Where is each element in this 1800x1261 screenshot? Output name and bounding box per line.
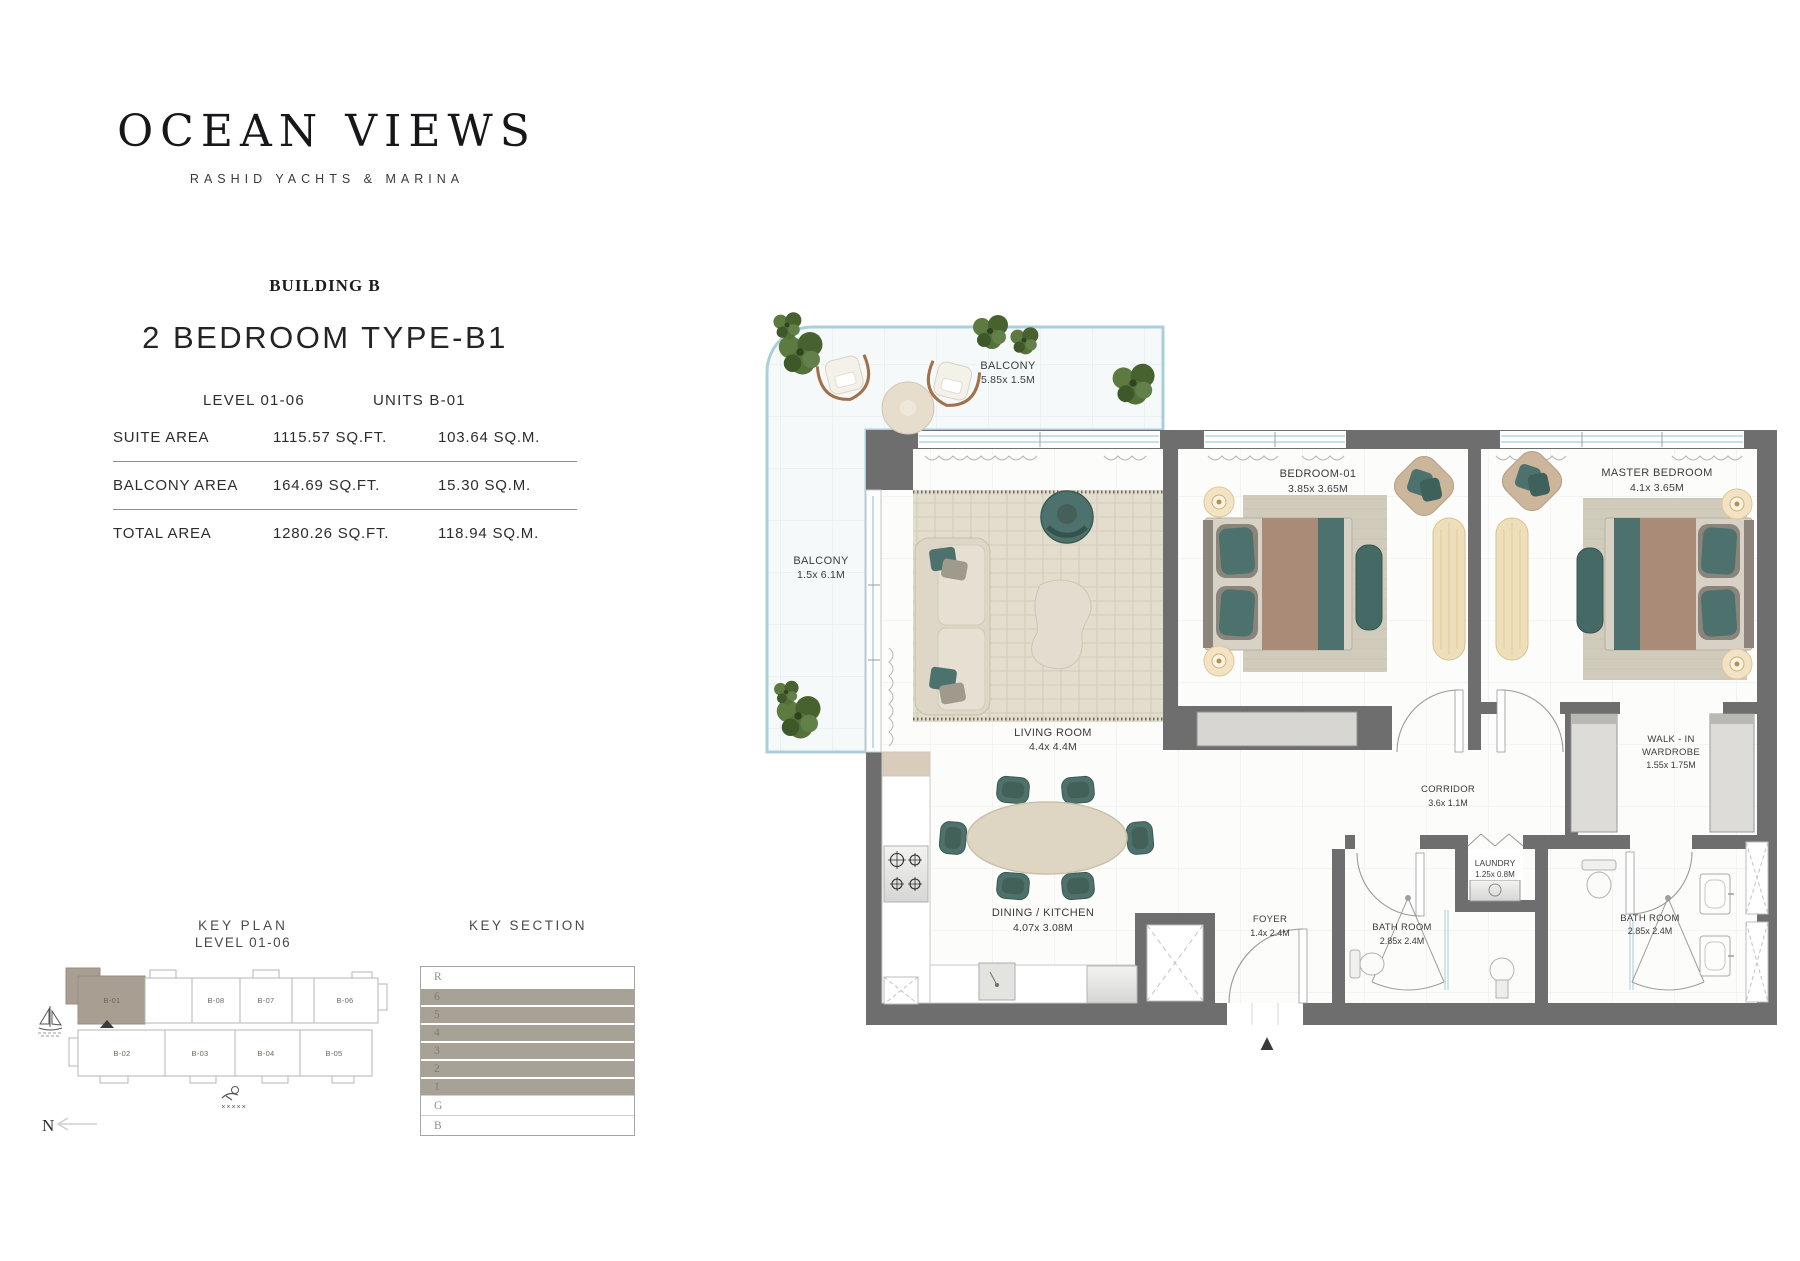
key-plan-unit-label: B-08 <box>207 996 224 1005</box>
key-section-row: 1 <box>421 1077 634 1095</box>
area-sqft: 164.69 SQ.FT. <box>273 477 438 494</box>
room-dims: 3.85x 3.65M <box>1288 483 1348 495</box>
key-section-row: R <box>421 967 634 987</box>
key-plan-unit-label: B-04 <box>257 1049 274 1058</box>
page-title: 2 BEDROOM TYPE-B1 <box>85 320 565 356</box>
room-dims: 4.4x 4.4M <box>1029 741 1077 753</box>
area-label: SUITE AREA <box>113 429 273 446</box>
kitchen-sink <box>979 963 1015 1000</box>
key-plan-diagram: B-01 B-08 B-07 B-06 B-02 B-03 B-04 B-05 … <box>30 958 410 1143</box>
brochure-page: OCEAN VIEWS RASHID YACHTS & MARINA BUILD… <box>0 0 1800 1261</box>
area-label: TOTAL AREA <box>113 525 273 542</box>
brand-tagline: RASHID YACHTS & MARINA <box>117 172 537 186</box>
bed-bench <box>1577 548 1603 633</box>
room-dims: 2.85x 2.4M <box>1380 936 1425 946</box>
room-dims: 1.25x 0.8M <box>1475 870 1515 879</box>
room-label-foyer: FOYER <box>1253 914 1287 925</box>
area-sqm: 103.64 SQ.M. <box>438 429 577 446</box>
area-label: BALCONY AREA <box>113 477 273 494</box>
room-dims: 1.55x 1.75M <box>1646 760 1696 770</box>
key-section-row-label: B <box>434 1120 442 1132</box>
key-section-row: 2 <box>421 1059 634 1077</box>
level-label: LEVEL 01-06 <box>203 392 305 409</box>
entrance-marker-icon: ▲ <box>1256 1030 1278 1055</box>
room-dims: 2.85x 2.4M <box>1628 926 1673 936</box>
key-section-row-label: 3 <box>434 1045 440 1057</box>
area-sqft: 1115.57 SQ.FT. <box>273 429 438 446</box>
door-leaf <box>1455 690 1463 752</box>
bedside-lamp <box>1722 649 1752 679</box>
bedside-lamp <box>1204 646 1234 676</box>
stove <box>884 846 928 902</box>
room-dims: 4.07x 3.08M <box>1013 922 1073 934</box>
built-in-closet <box>1197 712 1357 746</box>
key-section-row-label: R <box>434 971 442 983</box>
round-table <box>882 382 934 434</box>
bed-bench <box>1356 545 1382 630</box>
room-label-bedroom1: BEDROOM-01 <box>1280 468 1357 480</box>
dining-chair <box>996 872 1030 901</box>
key-section-row-label: 6 <box>434 991 440 1003</box>
room-dims: 5.85x 1.5M <box>981 374 1035 386</box>
room-label-balcony-left: BALCONY <box>793 555 849 567</box>
room-label-bath2: BATH ROOM <box>1620 913 1680 924</box>
north-label: N <box>42 1116 54 1135</box>
table-row: SUITE AREA 1115.57 SQ.FT. 103.64 SQ.M. <box>113 414 577 462</box>
key-section-row-label: 4 <box>434 1027 440 1039</box>
dining-table <box>967 802 1127 874</box>
key-section-row-label: 1 <box>434 1081 440 1093</box>
room-label-walkin: WALK - IN <box>1647 734 1694 745</box>
armchair <box>1041 491 1093 543</box>
key-section-title: KEY SECTION <box>443 918 613 933</box>
key-section-row-label: 2 <box>434 1063 440 1075</box>
area-sqm: 118.94 SQ.M. <box>438 525 577 542</box>
bedside-lamp <box>1204 487 1234 517</box>
washing-machine <box>1470 880 1520 901</box>
key-plan-unit-label: B-06 <box>336 996 353 1005</box>
key-section-row: 6 <box>421 987 634 1005</box>
wave-marks: ××××× <box>221 1104 246 1111</box>
dining-chair <box>996 776 1030 805</box>
door-leaf <box>1497 690 1505 752</box>
room-dims: 1.5x 6.1M <box>797 569 845 581</box>
kitchen-appliance <box>1087 966 1137 1003</box>
key-plan-unit-label: B-03 <box>191 1049 208 1058</box>
north-arrow-icon: N <box>42 1116 97 1135</box>
room-label-laundry: LAUNDRY <box>1475 858 1516 868</box>
door-leaf <box>1416 853 1424 916</box>
dining-chair <box>1061 872 1095 901</box>
bed <box>1203 518 1352 650</box>
door-leaf <box>1626 852 1634 914</box>
key-section-row-label: 5 <box>434 1009 440 1021</box>
floor-plan: ▲ BALCONY 5.85x 1.5M BALCONY 1.5x 6.1M L… <box>755 310 1800 1055</box>
bed <box>1605 518 1754 650</box>
table-row: BALCONY AREA 164.69 SQ.FT. 15.30 SQ.M. <box>113 462 577 510</box>
dining-chair <box>1126 821 1155 855</box>
swimmer-icon: ××××× <box>221 1087 246 1112</box>
room-dims: 4.1x 3.65M <box>1630 482 1684 494</box>
table-row: TOTAL AREA 1280.26 SQ.FT. 118.94 SQ.M. <box>113 510 577 557</box>
room-dims: 1.4x 2.4M <box>1250 928 1290 938</box>
key-plan-title-text: KEY PLAN <box>158 918 328 933</box>
bedside-lamp <box>1722 489 1752 519</box>
room-label-balcony-top: BALCONY <box>980 360 1036 372</box>
room-label-master: MASTER BEDROOM <box>1601 467 1712 479</box>
vanity-sink <box>1700 936 1734 976</box>
units-label: UNITS B-01 <box>373 392 466 409</box>
sailboat-icon <box>38 1006 63 1036</box>
room-dims: 3.6x 1.1M <box>1428 798 1468 808</box>
brand-logo-text: OCEAN VIEWS <box>117 106 537 157</box>
key-plan-unit-label: B-02 <box>113 1049 130 1058</box>
area-table: SUITE AREA 1115.57 SQ.FT. 103.64 SQ.M. B… <box>113 414 577 557</box>
brand-logo: OCEAN VIEWS RASHID YACHTS & MARINA <box>117 106 537 186</box>
key-plan-unit-label: B-07 <box>257 996 274 1005</box>
key-plan-unit-label: B-01 <box>103 996 120 1005</box>
wardrobe-door <box>1496 518 1528 660</box>
key-section-row: B <box>421 1115 634 1135</box>
room-label-walkin2: WARDROBE <box>1642 747 1700 758</box>
building-title: BUILDING B <box>125 276 525 296</box>
vanity-sink <box>1700 874 1734 914</box>
key-section-row: 3 <box>421 1041 634 1059</box>
key-section-row: 4 <box>421 1023 634 1041</box>
key-section-row: G <box>421 1095 634 1115</box>
key-plan-subtitle: LEVEL 01-06 <box>158 935 328 950</box>
sofa <box>915 538 990 715</box>
window <box>918 431 1744 448</box>
key-plan-title: KEY PLAN LEVEL 01-06 <box>158 918 328 950</box>
room-label-dining: DINING / KITCHEN <box>992 907 1094 919</box>
key-section-row: 5 <box>421 1005 634 1023</box>
key-plan-unit-label: B-05 <box>325 1049 342 1058</box>
area-sqm: 15.30 SQ.M. <box>438 477 577 494</box>
key-section-row-label: G <box>434 1100 443 1112</box>
key-section-table: R 6 5 4 3 2 1 G B <box>420 966 635 1136</box>
dining-chair <box>939 821 968 855</box>
door-leaf <box>1299 929 1307 1003</box>
room-label-corridor: CORRIDOR <box>1421 784 1475 795</box>
area-sqft: 1280.26 SQ.FT. <box>273 525 438 542</box>
room-label-living: LIVING ROOM <box>1014 727 1092 739</box>
wardrobe-door <box>1433 518 1465 660</box>
dining-chair <box>1061 776 1095 805</box>
sliding-glass-door <box>866 490 881 752</box>
room-label-bath1: BATH ROOM <box>1372 922 1432 933</box>
